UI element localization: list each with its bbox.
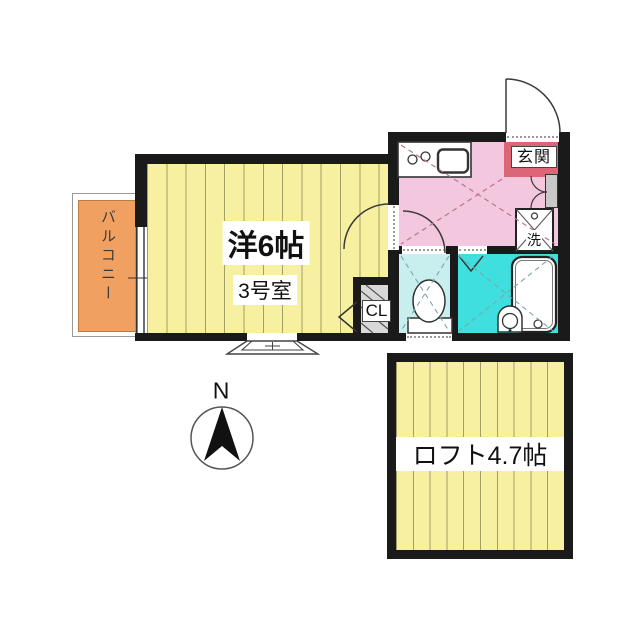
loft-label: ロフト4.7帖 — [413, 436, 548, 472]
stove-burner — [408, 155, 417, 164]
entrance-label: 玄関 — [511, 146, 557, 168]
kitchen-sink — [438, 150, 468, 173]
floor-plan-linework — [0, 0, 640, 640]
washer-label: 洗 — [526, 230, 542, 250]
floor-plan: 洋6帖 3号室 バルコニー 玄関 洗 CL ロフト4.7帖 N — [0, 0, 640, 640]
kitchen-counter — [398, 142, 471, 177]
closet-label: CL — [362, 300, 391, 322]
room-door-arc — [344, 204, 389, 249]
compass — [191, 407, 253, 469]
closet-door-fold — [339, 302, 357, 332]
room-number-label: 3号室 — [233, 275, 297, 305]
toilet-door-arc — [403, 211, 445, 253]
balcony-window — [128, 227, 147, 333]
stove-burner — [421, 152, 430, 161]
entrance-door-arc — [506, 79, 560, 133]
bath-faucet — [498, 306, 522, 332]
compass-north-label: N — [213, 378, 230, 405]
compass-needle — [204, 407, 240, 461]
cabinet-door-arcs — [531, 176, 547, 208]
main-room-size-label: 洋6帖 — [223, 221, 310, 265]
balcony-label: バルコニー — [97, 209, 118, 304]
bay-window — [227, 341, 318, 354]
